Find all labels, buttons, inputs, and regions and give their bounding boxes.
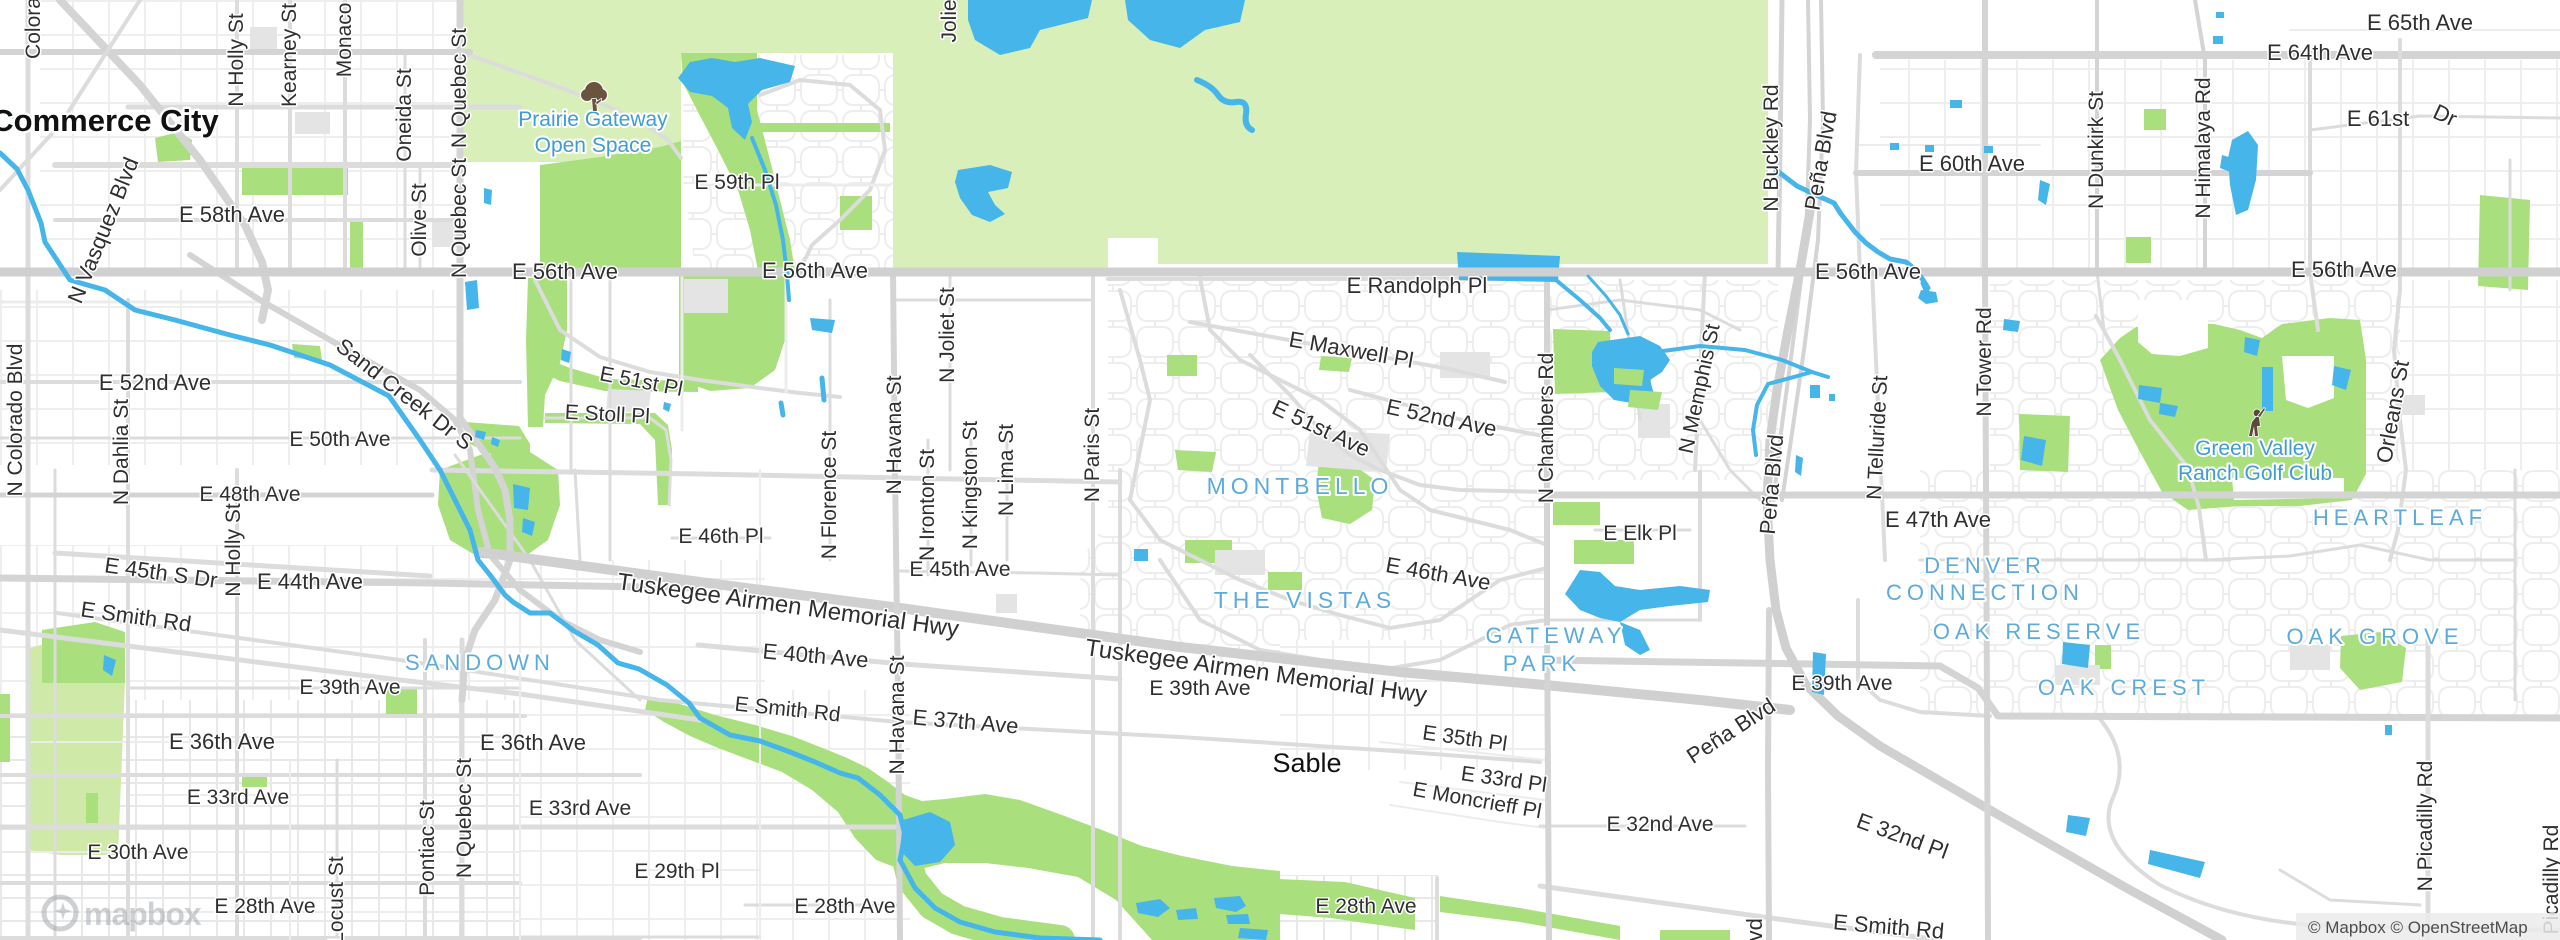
svg-text:Green Valley: Green Valley (2195, 437, 2315, 460)
svg-text:E 36th Ave: E 36th Ave (480, 730, 586, 755)
svg-text:Olive St: Olive St (408, 183, 431, 257)
svg-text:N Quebec St: N Quebec St (453, 758, 476, 878)
svg-text:N Holly St: N Holly St (225, 13, 248, 107)
svg-text:N Quebec St: N Quebec St (448, 28, 471, 148)
svg-text:N Buckley Rd: N Buckley Rd (1760, 84, 1783, 211)
svg-text:Kearney St: Kearney St (278, 3, 301, 107)
svg-text:N Himalaya Rd: N Himalaya Rd (2192, 77, 2215, 218)
svg-text:E 48th Ave: E 48th Ave (199, 483, 300, 506)
svg-text:E 33rd Ave: E 33rd Ave (187, 786, 289, 809)
svg-text:E Stoll Pl: E Stoll Pl (564, 401, 650, 428)
svg-text:E 39th Ave: E 39th Ave (1791, 672, 1892, 695)
svg-text:Colora: Colora (22, 0, 45, 59)
svg-text:SANDOWN: SANDOWN (405, 650, 555, 675)
svg-text:E 60th Ave: E 60th Ave (1919, 151, 2025, 176)
svg-text:N Paris St: N Paris St (1081, 408, 1104, 503)
svg-text:HEARTLEAF: HEARTLEAF (2313, 505, 2487, 530)
svg-text:E 58th Ave: E 58th Ave (179, 202, 285, 227)
svg-text:E Elk Pl: E Elk Pl (1603, 522, 1677, 545)
svg-text:Sable: Sable (1272, 748, 1341, 778)
svg-text:Airport Blvd: Airport Blvd (1742, 918, 1767, 940)
svg-text:PARK: PARK (1503, 651, 1581, 676)
svg-text:Monaco S: Monaco S (333, 0, 356, 77)
svg-text:E 56th Ave: E 56th Ave (762, 258, 868, 283)
svg-text:E 44th Ave: E 44th Ave (257, 569, 363, 594)
svg-text:OAK RESERVE: OAK RESERVE (1933, 619, 2145, 644)
svg-text:N Joliet St: N Joliet St (936, 287, 959, 383)
svg-text:N Kingston St: N Kingston St (959, 421, 982, 550)
svg-text:OAK GROVE: OAK GROVE (2286, 624, 2463, 649)
svg-text:Locust St: Locust St (325, 856, 348, 940)
svg-text:OAK CREST: OAK CREST (2038, 675, 2210, 700)
svg-text:E 39th Ave: E 39th Ave (1149, 677, 1250, 700)
svg-text:E Randolph Pl: E Randolph Pl (1347, 273, 1488, 298)
svg-text:E 64th Ave: E 64th Ave (2267, 40, 2373, 65)
svg-text:E 56th Ave: E 56th Ave (512, 259, 618, 284)
svg-text:N Ironton St: N Ironton St (916, 449, 939, 561)
svg-text:N Dahlia St: N Dahlia St (110, 399, 133, 505)
svg-text:E 28th Ave: E 28th Ave (1315, 895, 1416, 918)
svg-text:N Chambers Rd: N Chambers Rd (1535, 353, 1558, 504)
svg-text:E 46th Pl: E 46th Pl (678, 525, 763, 548)
svg-text:N Holly St: N Holly St (222, 503, 245, 597)
svg-text:E 33rd Ave: E 33rd Ave (529, 797, 631, 820)
svg-text:E 65th Ave: E 65th Ave (2367, 10, 2473, 35)
svg-text:E 59th Pl: E 59th Pl (694, 171, 779, 194)
svg-text:N Havana St: N Havana St (883, 375, 906, 494)
svg-text:E 52nd Ave: E 52nd Ave (99, 370, 211, 395)
svg-text:Ranch Golf Club: Ranch Golf Club (2178, 462, 2332, 485)
svg-text:E 28th Ave: E 28th Ave (794, 895, 895, 918)
svg-text:N Lima St: N Lima St (995, 424, 1018, 516)
svg-text:Open Space: Open Space (535, 134, 652, 157)
svg-text:GATEWAY: GATEWAY (1486, 623, 1627, 648)
svg-text:N Florence St: N Florence St (818, 431, 841, 560)
svg-text:© Mapbox © OpenStreetMap: © Mapbox © OpenStreetMap (2308, 918, 2528, 937)
svg-text:E 61st: E 61st (2347, 106, 2409, 131)
svg-text:E 29th Pl: E 29th Pl (634, 860, 719, 883)
svg-text:E 56th Ave: E 56th Ave (2291, 257, 2397, 282)
svg-text:E 50th Ave: E 50th Ave (289, 428, 390, 451)
svg-text:N Quebec St: N Quebec St (448, 158, 471, 278)
svg-text:N Picadilly Rd: N Picadilly Rd (2414, 761, 2437, 892)
svg-text:CONNECTION: CONNECTION (1886, 580, 2084, 605)
svg-text:E 32nd Ave: E 32nd Ave (1606, 813, 1713, 836)
svg-text:E 36th Ave: E 36th Ave (169, 729, 275, 754)
svg-text:E 28th Ave: E 28th Ave (214, 895, 315, 918)
svg-text:Joliet: Joliet (938, 0, 961, 43)
svg-text:N Dunkirk St: N Dunkirk St (2085, 91, 2108, 209)
svg-text:E 39th Ave: E 39th Ave (299, 676, 400, 699)
svg-text:DENVER: DENVER (1924, 553, 2046, 578)
svg-text:N Tower Rd: N Tower Rd (1973, 307, 1996, 416)
svg-text:N Colorado Blvd: N Colorado Blvd (4, 344, 27, 497)
svg-text:MONTBELLO: MONTBELLO (1207, 473, 1394, 499)
svg-text:E 56th Ave: E 56th Ave (1815, 259, 1921, 284)
svg-text:E 47th Ave: E 47th Ave (1885, 507, 1991, 532)
svg-text:Commerce City: Commerce City (0, 103, 219, 138)
svg-text:Oneida St: Oneida St (393, 68, 416, 162)
svg-text:mapbox: mapbox (84, 896, 202, 932)
svg-text:Pontiac St: Pontiac St (416, 800, 439, 896)
svg-text:N Havana St: N Havana St (886, 655, 909, 774)
svg-text:THE VISTAS: THE VISTAS (1214, 587, 1397, 613)
svg-text:E 30th Ave: E 30th Ave (87, 841, 188, 864)
